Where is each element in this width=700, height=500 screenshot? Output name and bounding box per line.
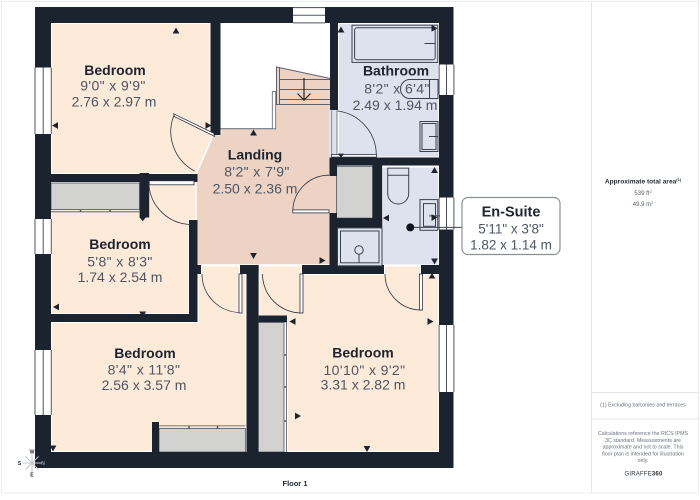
svg-text:8'2" x 6'4": 8'2" x 6'4" [364,81,430,97]
svg-text:1.74 x 2.54 m: 1.74 x 2.54 m [78,269,163,285]
svg-text:Bathroom: Bathroom [363,63,429,79]
svg-text:2.56 x 3.57 m: 2.56 x 3.57 m [102,377,187,393]
svg-text:Approximate total area(1): Approximate total area(1) [605,177,682,186]
svg-text:approximate and not to scale.: approximate and not to scale. This [603,445,684,451]
svg-text:GIRAFFE360: GIRAFFE360 [624,472,662,478]
svg-text:9'0" x 9'9": 9'0" x 9'9" [80,78,146,94]
svg-text:5'8" x 8'3": 5'8" x 8'3" [87,254,153,270]
svg-text:Bedroom: Bedroom [332,345,393,361]
svg-text:1.82 x 1.14 m: 1.82 x 1.14 m [470,238,552,253]
svg-text:8'4" x 11'8": 8'4" x 11'8" [108,362,181,378]
svg-text:3C standard. Measurements are: 3C standard. Measurements are [605,438,681,444]
svg-text:N: N [41,461,45,467]
svg-text:Bedroom: Bedroom [89,236,150,252]
svg-text:Calculations reference the RIC: Calculations reference the RICS IPMS [598,431,689,437]
svg-text:Landing: Landing [228,147,282,163]
svg-text:2.49 x 1.94 m: 2.49 x 1.94 m [353,97,438,113]
svg-text:En-Suite: En-Suite [482,205,541,221]
svg-text:Bedroom: Bedroom [84,62,145,78]
svg-text:E: E [30,473,34,479]
svg-text:floor plan is intended for ill: floor plan is intended for illustration [602,451,684,457]
svg-text:539 ft2: 539 ft2 [634,190,651,197]
svg-text:Bedroom: Bedroom [114,345,175,361]
svg-text:8'2" x 7'9": 8'2" x 7'9" [224,164,290,180]
svg-text:3.31 x 2.82 m: 3.31 x 2.82 m [321,377,406,393]
svg-text:only.: only. [638,458,649,464]
svg-text:2.76 x 2.97 m: 2.76 x 2.97 m [72,94,157,110]
svg-text:2.50 x 2.36 m: 2.50 x 2.36 m [213,181,298,197]
svg-text:5'11" x 3'8": 5'11" x 3'8" [478,222,544,237]
svg-text:49.9 m2: 49.9 m2 [633,201,653,208]
svg-text:Floor 1: Floor 1 [282,479,307,488]
svg-text:W: W [30,450,35,456]
svg-text:S: S [18,461,22,467]
svg-text:(1) Excluding balconies and te: (1) Excluding balconies and terraces [600,403,686,409]
